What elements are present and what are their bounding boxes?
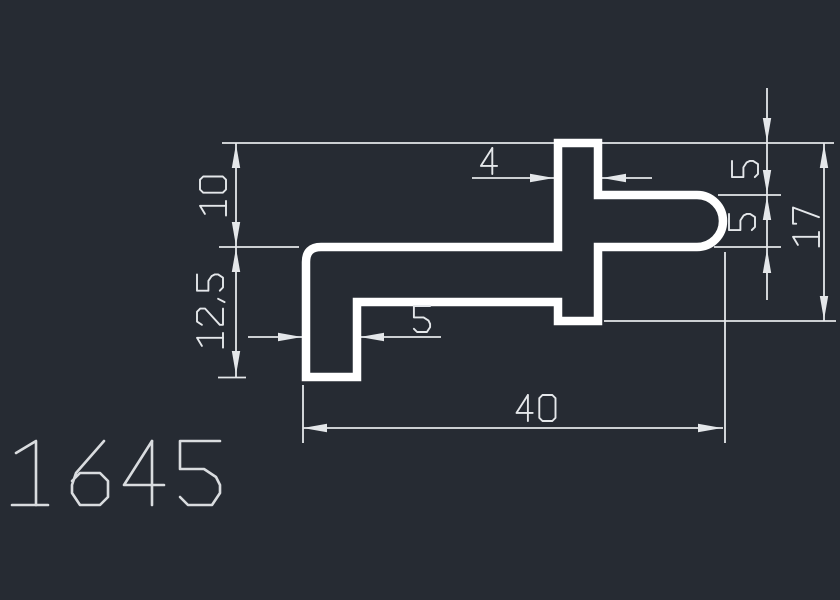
technical-drawing — [0, 0, 840, 600]
cad-canvas — [0, 0, 840, 600]
